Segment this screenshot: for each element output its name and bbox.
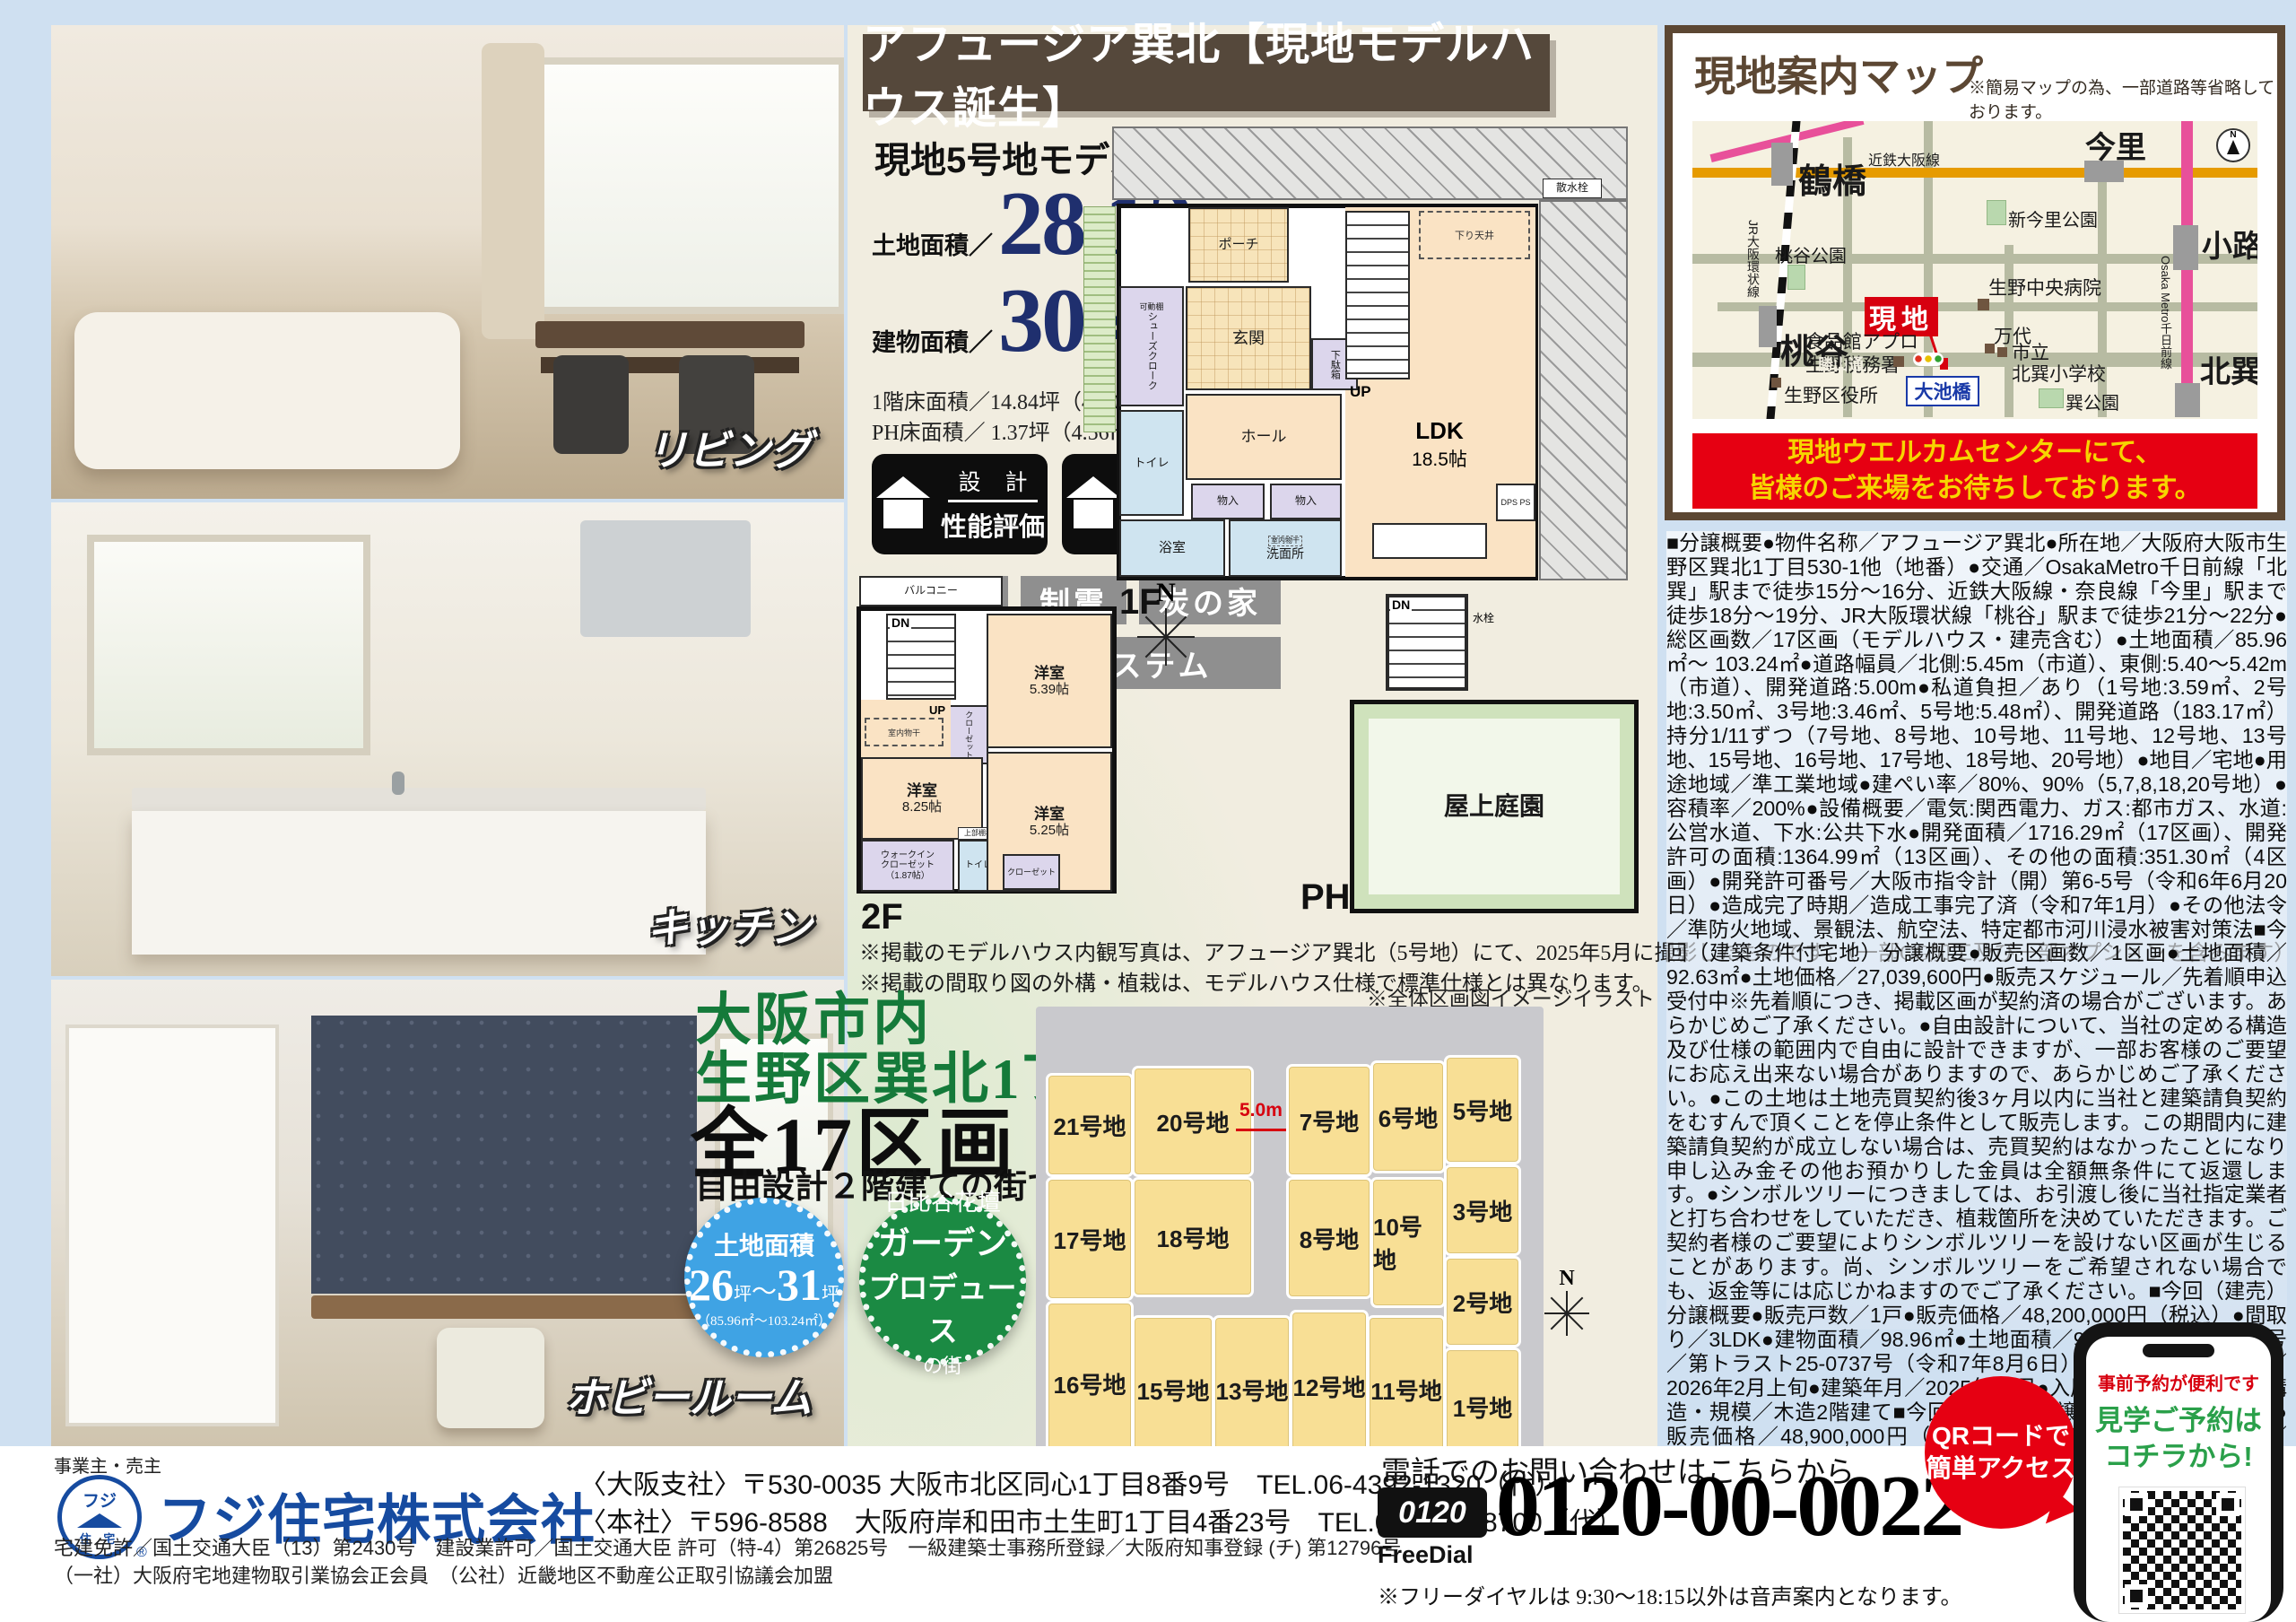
park-momodani-shape	[1787, 265, 1805, 290]
1f-bath: 浴室	[1119, 519, 1225, 577]
building-area-label: 建物面積／	[872, 323, 993, 358]
hospital-marker	[1978, 299, 1989, 310]
badge-land-n1: 26	[689, 1262, 734, 1307]
lot-10: 10号地	[1370, 1177, 1446, 1308]
badge-garden-t4: の街	[923, 1350, 962, 1379]
label-park-momodani: 桃谷公園	[1775, 241, 1847, 267]
smartphone-screen: 事前予約が便利です 見学ご予約は コチラから!	[2086, 1337, 2271, 1622]
welcome-banner-line2: 皆様のご来場をお待ちしております。	[1748, 471, 2201, 508]
1f-monohoshi-label: 室内物干	[1268, 536, 1302, 545]
floor-plan-ph: DN 水栓 屋上庭園 PH	[1300, 583, 1655, 920]
label-park-tatsumi: 巽公園	[2066, 388, 2119, 414]
park-tatsumi-shape	[2039, 388, 2064, 408]
1f-side-hatch	[1539, 200, 1628, 580]
license-line1: 宅建免許／国土交通大臣（13）第2430号 建設業許可／国土交通大臣 許可（特-…	[54, 1532, 1401, 1561]
reservation-note: 事前予約が便利です	[2086, 1369, 2271, 1395]
label-imazato: 今里	[2085, 123, 2146, 167]
hobby-desk-shape	[311, 1295, 742, 1319]
photo-kitchen: キッチン	[51, 502, 844, 976]
1f-kadoudana-label: 可動棚	[1139, 302, 1163, 311]
design-badge-text: 設 計 性能評価	[941, 465, 1045, 544]
1f-sansui-label: 散水栓	[1543, 179, 1602, 198]
lot-15: 15号地	[1132, 1315, 1214, 1464]
badge-garden-t3: プロデュース	[865, 1264, 1020, 1350]
label-shoji: 小路	[2202, 222, 2257, 266]
freedial-icon: 0120	[1378, 1487, 1487, 1538]
living-window-shape	[535, 57, 844, 314]
badge-garden-t2: ガーデン	[878, 1217, 1007, 1264]
badge-garden-t1: 日比谷花壇	[884, 1184, 1001, 1217]
1f-hall: ホール	[1186, 394, 1342, 480]
floor-plan-1f: 散水栓 ポーチ 玄関 可動棚 シューズクローク 下駄箱 UP 下り天井 LDK …	[1076, 121, 1628, 610]
caption-living: リビング	[647, 418, 812, 477]
2f-dn-label: DN	[890, 615, 911, 630]
tsuruhashi-station	[1771, 143, 1793, 186]
1f-shoes-label: シューズクローク	[1146, 311, 1158, 390]
map-canvas: 今里 鶴橋 桃谷 小路 北巽 近鉄大阪線 JR大阪環状線 Osaka Metro…	[1692, 121, 2257, 419]
ph-suisen-label: 水栓	[1473, 610, 1494, 625]
school-marker	[1997, 347, 2007, 357]
sales-overview-text: ■分譲概要●物件名称／アフュージア巽北●所在地／大阪府大阪市生野区巽北1丁目53…	[1666, 531, 2287, 1330]
badge-land-m2: （85.96㎡〜103.24㎡）	[697, 1311, 831, 1330]
lot-12: 12号地	[1290, 1310, 1369, 1463]
mount-fuji-icon	[77, 1513, 122, 1528]
badge-land-u1: 坪	[734, 1286, 752, 1304]
2f-wic: ウォークイン クローゼット （1.87帖）	[861, 840, 954, 892]
land-size-badge: 土地面積 26 坪 〜 31 坪 （85.96㎡〜103.24㎡）	[684, 1198, 844, 1357]
2f-wic-line2: クローゼット	[881, 860, 935, 871]
2f-wic-line3: （1.87帖）	[885, 871, 929, 882]
label-oikebashi: 大池橋	[1906, 376, 1979, 406]
freedial-label: FreeDial	[1378, 1541, 1474, 1569]
1f-storage1: 物入	[1191, 484, 1265, 519]
plan-compass: N	[1137, 578, 1195, 666]
1f-shoes-closet: 可動棚 シューズクローク	[1119, 286, 1184, 406]
kitchen-hood-shape	[580, 520, 751, 637]
siteplan-compass: N	[1544, 1267, 1589, 1336]
lot-8: 8号地	[1286, 1177, 1372, 1299]
1f-wash-label: 洗面所	[1266, 546, 1304, 561]
lot-2: 2号地	[1444, 1256, 1521, 1347]
map-title: 現地案内マップ	[1694, 44, 1983, 103]
reservation-line1: 見学ご予約は	[2086, 1398, 2271, 1438]
caption-kitchen: キッチン	[647, 895, 812, 955]
kuyakusho-marker	[1771, 378, 1781, 388]
2f-closet1-label: クローゼット	[964, 711, 973, 759]
welcome-banner: 現地ウエルカムセンターにて、 皆様のご来場をお待ちしております。	[1692, 433, 2257, 509]
hobby-wardrobe-shape	[65, 1025, 279, 1426]
badge-land-range: 26 坪 〜 31 坪	[689, 1262, 839, 1307]
ph-roof-garden: 屋上庭園	[1350, 700, 1639, 913]
reservation-line2: コチラから!	[2086, 1434, 2271, 1474]
qr-bubble-line2: 簡単アクセス	[1926, 1452, 2076, 1485]
momodani-station	[1759, 306, 1777, 347]
2f-balcony: バルコニー	[859, 576, 1003, 606]
1f-ldk-label: LDK	[1381, 417, 1498, 445]
1f-stairs	[1345, 211, 1410, 379]
1f-kitchen-counter	[1372, 523, 1487, 559]
park-shinimazato-shape	[1987, 200, 2006, 225]
1f-toilet: トイレ	[1119, 410, 1184, 516]
living-table-shape	[535, 321, 804, 348]
logo-text-top: フジ	[83, 1487, 117, 1512]
welcome-banner-line1: 現地ウエルカムセンターにて、	[1787, 435, 2162, 472]
design-badge-top: 設 計	[948, 465, 1039, 502]
qr-bubble-line1: QRコードで	[1932, 1420, 2070, 1452]
zeimusho-marker	[1893, 356, 1904, 367]
land-area-label: 土地面積／	[872, 226, 993, 261]
label-park-shinimazato: 新今里公園	[2008, 205, 2098, 231]
2f-room2-size: 8.25帖	[902, 799, 942, 815]
lot-7: 7号地	[1286, 1064, 1372, 1177]
2f-closet2: クローゼット	[1003, 854, 1060, 890]
traffic-light-icon	[1913, 353, 1944, 366]
kitchen-counter-top-shape	[132, 788, 706, 811]
photo-living-room: リビング	[51, 25, 844, 499]
mandai-marker	[1985, 344, 1995, 353]
title-banner: アフュージア巽北【現地モデルハウス誕生】	[863, 34, 1550, 111]
house-icon	[874, 476, 932, 532]
badge-land-title: 土地面積	[714, 1226, 814, 1262]
label-kuyakusho: 生野区役所	[1784, 381, 1878, 408]
1f-up-label: UP	[1350, 383, 1371, 401]
phone-number: 0120-00-0022	[1496, 1462, 1961, 1550]
1f-planting-strip	[1083, 206, 1116, 432]
lot-5: 5号地	[1444, 1055, 1521, 1164]
1f-dps: DPS PS	[1496, 484, 1535, 521]
2f-room3-label: 洋室	[1034, 806, 1065, 824]
badge-land-n2: 31	[777, 1262, 822, 1307]
kitchen-faucet-shape	[392, 772, 404, 795]
caption-hobby: ホビールーム	[565, 1365, 812, 1425]
label-jr-line: JR大阪環状線	[1744, 220, 1762, 298]
hobby-pegboard-shape	[311, 1016, 697, 1294]
2f-monohoshi: 室内物干	[865, 718, 944, 746]
map-note: ※簡易マップの為、一部道路等省略しております。	[1969, 74, 2277, 123]
label-hospital: 生野中央病院	[1988, 274, 2101, 301]
design-performance-badge: 設 計 性能評価	[872, 454, 1048, 554]
compass-star-icon	[1544, 1291, 1589, 1336]
1f-porch: ポーチ	[1188, 207, 1289, 283]
license-line2: （一社）大阪府宅地建物取引業協会正会員 （公社）近畿地区不動産公正取引協議会加盟	[54, 1560, 833, 1589]
compass-star-icon	[1137, 608, 1195, 666]
company-role-label: 事業主・売主	[54, 1452, 161, 1478]
hobby-chair-shape	[437, 1328, 544, 1428]
2f-room3-size: 5.25帖	[1030, 823, 1069, 838]
1f-ldk-size: 18.5帖	[1381, 445, 1498, 472]
badge-land-u2: 坪	[822, 1286, 839, 1304]
living-sofa-shape	[74, 312, 460, 469]
2f-plan-label: 2F	[861, 897, 903, 937]
2f-wic-line1: ウォークイン	[881, 850, 935, 861]
map-compass: N	[2216, 128, 2250, 162]
1f-ldk-label-group: LDK 18.5帖	[1381, 417, 1498, 472]
road-width-arrow	[1236, 1129, 1286, 1131]
label-kintetsu-line: 近鉄大阪線	[1868, 148, 1940, 170]
lot-6: 6号地	[1370, 1060, 1446, 1173]
2f-up-label: UP	[929, 703, 945, 717]
label-kitatatsumi: 北巽	[2200, 347, 2257, 391]
lot-17: 17号地	[1046, 1177, 1134, 1301]
label-school-2: 北巽小学校	[2012, 360, 2106, 387]
flyer-page: リビング キッチン ホビールーム アフュージア巽北【現地モデルハウス誕生】 現地…	[0, 0, 2296, 1622]
lot-3: 3号地	[1444, 1164, 1521, 1256]
2f-room1-label: 洋室	[1034, 665, 1065, 683]
living-curtain-shape	[482, 43, 544, 339]
lot-20: 20号地	[1132, 1066, 1254, 1177]
phone-note: ※フリーダイヤルは 9:30〜18:15以外は音声案内となります。	[1378, 1579, 1962, 1610]
lot-21: 21号地	[1046, 1073, 1134, 1177]
1f-washroom: 室内物干 洗面所	[1229, 519, 1342, 577]
label-tsuruhashi: 鶴橋	[1798, 153, 1866, 203]
kitatatsumi-station	[2175, 383, 2200, 417]
floor-plan-2f: バルコニー DN 洋室 5.39帖 クローゼット UP 室内物干 洋室 8.25…	[852, 574, 1121, 933]
kitchen-island-shape	[132, 811, 706, 955]
lot-16: 16号地	[1046, 1301, 1134, 1466]
ph-plan-label: PH	[1300, 877, 1351, 918]
road-width-label: 5.0m	[1239, 1100, 1283, 1121]
map-compass-n: N	[2230, 130, 2236, 140]
label-metro-line: Osaka Metro千日前線	[2157, 256, 2174, 369]
lot-13: 13号地	[1213, 1315, 1291, 1464]
lot-11: 11号地	[1367, 1315, 1446, 1464]
2f-closet1: クローゼット	[949, 705, 988, 764]
1f-genkan: 玄関	[1186, 286, 1311, 390]
smartphone-mockup: 事前予約が便利です 見学ご予約は コチラから!	[2074, 1322, 2283, 1622]
2f-room1-size: 5.39帖	[1030, 682, 1069, 697]
plan-compass-n: N	[1156, 578, 1176, 608]
badge-land-tilde: 〜	[752, 1280, 777, 1305]
2f-room2-label: 洋室	[907, 782, 937, 800]
qr-corner	[2125, 1584, 2148, 1608]
2f-room1: 洋室 5.39帖	[987, 614, 1112, 748]
lot-18: 18号地	[1132, 1177, 1254, 1297]
smartphone-notch	[2143, 1344, 2214, 1357]
label-katsuyama: 勝山通	[1818, 352, 1864, 374]
design-badge-bottom: 性能評価	[941, 506, 1045, 544]
siteplan-compass-n: N	[1559, 1267, 1574, 1291]
1f-storage2: 物入	[1270, 484, 1342, 519]
ph-dn-label: DN	[1390, 597, 1412, 612]
kitchen-window-shape	[87, 535, 370, 755]
garden-produce-badge: 日比谷花壇 ガーデン プロデュース の街	[859, 1198, 1026, 1365]
shoji-station	[2173, 225, 2198, 270]
qr-code	[2119, 1487, 2245, 1613]
living-chair-shape	[553, 355, 629, 454]
1f-sagaritenjo: 下り天井	[1419, 211, 1530, 259]
map-panel: 現地案内マップ ※簡易マップの為、一部道路等省略しております。 今里 鶴橋 桃谷…	[1665, 25, 2285, 520]
